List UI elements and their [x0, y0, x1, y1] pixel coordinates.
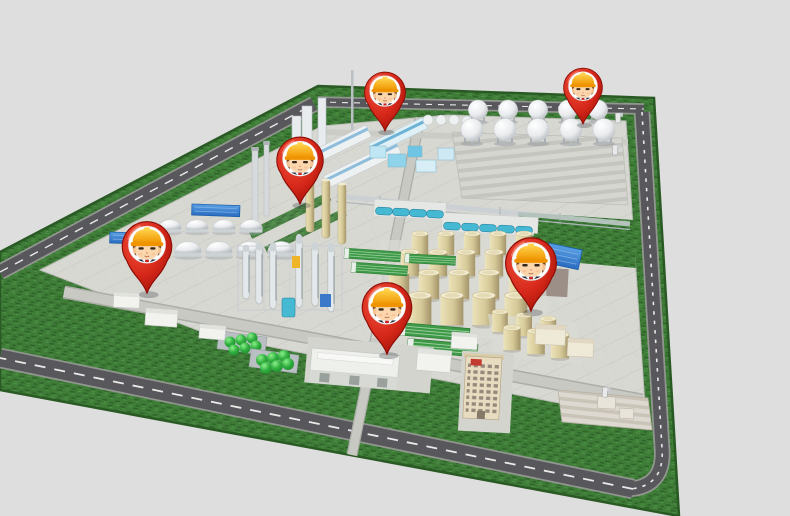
utility-building	[416, 348, 452, 373]
column	[256, 242, 263, 304]
teal-vessel	[282, 298, 295, 317]
red-sign	[471, 359, 482, 366]
chimney	[252, 150, 258, 228]
site-map[interactable]	[0, 0, 790, 516]
sphere-tank	[461, 119, 483, 147]
column	[312, 242, 319, 306]
blue-unit	[320, 294, 331, 307]
pool	[192, 204, 240, 217]
office-tower	[461, 353, 504, 420]
horizontal-tank	[442, 222, 462, 232]
yellow-unit	[292, 256, 300, 268]
cream-building	[567, 338, 594, 357]
sphere-tank	[494, 119, 516, 147]
utility-building	[451, 332, 478, 350]
column	[270, 242, 277, 309]
sphere-tank	[560, 119, 582, 147]
process-tower	[318, 98, 326, 150]
sphere-tank	[527, 119, 549, 147]
column	[296, 234, 303, 308]
sphere-tank	[593, 119, 615, 147]
storage-box	[619, 408, 634, 419]
chimney	[264, 144, 269, 216]
column	[243, 245, 250, 299]
screenshot-stage	[0, 0, 790, 516]
storage-tank	[440, 292, 464, 329]
horizontal-tank	[425, 210, 445, 220]
storage-box	[597, 396, 616, 409]
flare-stack	[351, 70, 354, 130]
cream-building	[535, 324, 566, 346]
storage-tank	[503, 325, 521, 353]
